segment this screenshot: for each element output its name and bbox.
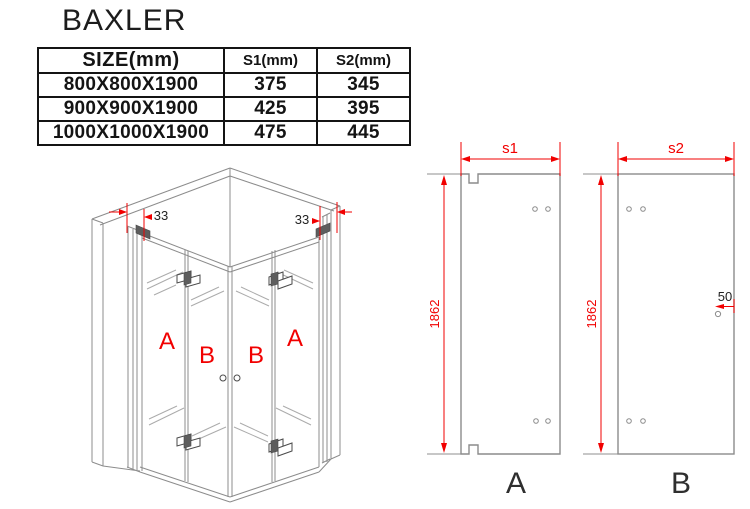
door-knob-right bbox=[234, 375, 240, 381]
panel-a-label: A bbox=[506, 467, 526, 500]
panel-b-label: B bbox=[671, 467, 691, 500]
dim-s2: s2 bbox=[618, 140, 734, 176]
iso-panel-label-a-left: A bbox=[159, 328, 175, 355]
dim-s1: s1 bbox=[461, 140, 560, 176]
panel-b-drawing: s2 1862 50 B bbox=[583, 140, 734, 500]
iso-panel-label-b-left: B bbox=[199, 342, 215, 369]
iso-panel-label-b-right: B bbox=[248, 342, 264, 369]
glass-clamp-left bbox=[136, 225, 150, 239]
panel-a-outline bbox=[461, 174, 560, 454]
dim-1862-b: 1862 bbox=[584, 175, 604, 453]
technical-drawing: 33 33 A B B A bbox=[0, 0, 750, 509]
dim-33-left-label: 33 bbox=[154, 208, 168, 223]
dim-1862-a: 1862 bbox=[427, 175, 447, 453]
dim-33-left: 33 bbox=[109, 203, 168, 241]
dim-50-label: 50 bbox=[718, 289, 732, 304]
dim-33-right-label: 33 bbox=[295, 212, 309, 227]
door-knob-left bbox=[220, 375, 226, 381]
dim-s2-label: s2 bbox=[668, 140, 684, 157]
panel-b-outline bbox=[618, 174, 734, 454]
iso-panel-label-a-right: A bbox=[287, 325, 303, 352]
panel-a-drawing: s1 1862 A bbox=[427, 140, 560, 500]
dim-1862-b-label: 1862 bbox=[584, 300, 599, 329]
iso-drawing: 33 33 A B B A bbox=[92, 168, 352, 502]
spec-sheet: BAXLER SIZE(mm) S1(mm) S2(mm) 800X800X19… bbox=[0, 0, 750, 509]
dim-s1-label: s1 bbox=[502, 140, 518, 157]
dim-1862-a-label: 1862 bbox=[427, 300, 442, 329]
hinge-left-bottom bbox=[177, 434, 200, 450]
